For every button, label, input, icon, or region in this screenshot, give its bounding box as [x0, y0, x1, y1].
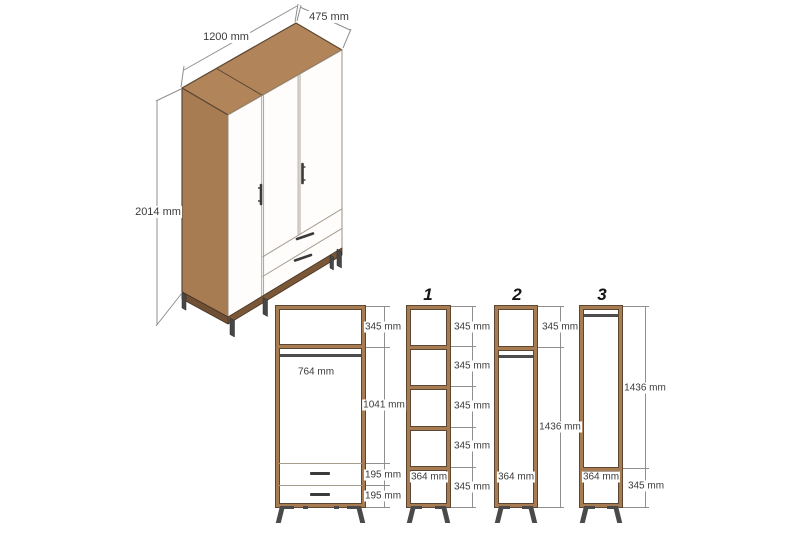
- dimension-line: [645, 306, 646, 507]
- leg-bar: [522, 506, 532, 509]
- dimension-line: [560, 306, 561, 507]
- iso-width-label: 1200 mm: [202, 31, 250, 43]
- isometric-wardrobe-drawing: [0, 0, 800, 533]
- leg-bar: [607, 506, 617, 509]
- iso-depth-label: 475 mm: [308, 11, 350, 23]
- leg-bar: [412, 506, 422, 509]
- dimension-tick: [451, 507, 476, 508]
- dim-tall-section: 1436 mm: [623, 383, 667, 394]
- hanging-rod: [584, 314, 618, 317]
- dimension-tick: [538, 347, 564, 348]
- dimension-tick: [366, 347, 390, 348]
- dim-bottom-compartment: 345 mm: [627, 481, 665, 492]
- side-panel: [182, 88, 228, 317]
- dimension-tick: [451, 346, 476, 347]
- dimension-tick: [451, 386, 476, 387]
- drawer-handle: [310, 493, 330, 496]
- dimension-tick: [538, 507, 564, 508]
- dim-drawer2: 195 mm: [364, 491, 402, 502]
- dim-cell-3: 345 mm: [453, 401, 491, 412]
- hanging-rod: [280, 354, 361, 357]
- shelf: [410, 467, 447, 470]
- drawer-divider-line: [279, 485, 362, 486]
- dim-top-compartment: 345 mm: [541, 322, 579, 333]
- dim-cell-1: 345 mm: [453, 322, 491, 333]
- dimension-tick: [451, 467, 476, 468]
- dimension-tick: [366, 306, 390, 307]
- dimension-tick: [623, 468, 649, 469]
- dim-cell-4: 345 mm: [453, 441, 491, 452]
- dim-inner-width: 364 mm: [410, 472, 448, 483]
- leg-bar: [585, 506, 595, 509]
- shelf: [410, 346, 447, 349]
- wardrobe-dimension-sheet: 1200 mm 475 mm 2014 mm 345 mm 764 mm 104…: [0, 0, 800, 533]
- dimension-tick: [451, 306, 476, 307]
- dim-inner-width: 364 mm: [497, 472, 535, 483]
- iso-height-label: 2014 mm: [134, 206, 182, 218]
- wardrobe-body: [182, 23, 342, 337]
- leg-bar: [500, 506, 510, 509]
- dimension-tick: [366, 507, 390, 508]
- leg-bar: [347, 506, 360, 509]
- back-leg: [334, 506, 339, 509]
- dim-tall-section: 1436 mm: [538, 422, 582, 433]
- option3-number: 3: [597, 285, 606, 305]
- dim-top-compartment: 345 mm: [364, 322, 402, 333]
- dimension-tick: [366, 463, 390, 464]
- dim-cell-2: 345 mm: [453, 361, 491, 372]
- dimension-tick: [451, 427, 476, 428]
- front-view-main-section: [276, 306, 365, 507]
- hanging-rod: [499, 355, 533, 358]
- option1-number: 1: [423, 285, 432, 305]
- dimension-tick: [366, 485, 390, 486]
- shelf: [410, 386, 447, 389]
- drawer-handle: [310, 472, 330, 475]
- dimension-tick: [538, 306, 564, 307]
- dimension-tick: [623, 306, 649, 307]
- shelf: [498, 347, 534, 350]
- option2-number: 2: [512, 285, 521, 305]
- back-leg: [303, 506, 308, 509]
- dimension-tick: [623, 507, 649, 508]
- leg-bar: [281, 506, 294, 509]
- shelf: [410, 427, 447, 430]
- drawer-top-line: [279, 463, 362, 464]
- dim-inner-width: 364 mm: [582, 472, 620, 483]
- dim-drawer1: 195 mm: [364, 470, 402, 481]
- leg-bar: [435, 506, 445, 509]
- dim-cell-5: 345 mm: [453, 482, 491, 493]
- shelf: [279, 345, 362, 348]
- dim-hanging-section: 1041 mm: [362, 400, 406, 411]
- dim-rod-width: 764 mm: [297, 367, 335, 378]
